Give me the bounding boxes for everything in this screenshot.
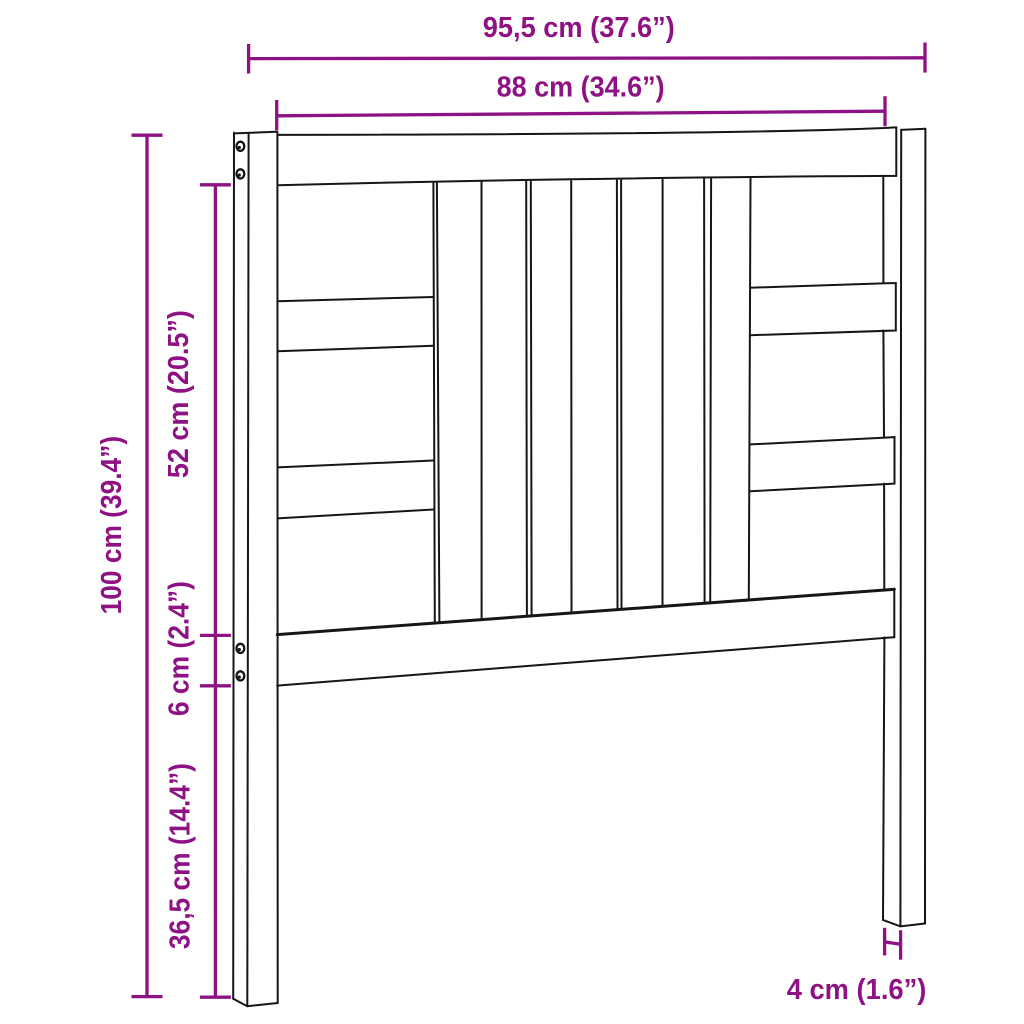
svg-text:36,5 cm (14.4”): 36,5 cm (14.4”) <box>165 763 197 949</box>
svg-text:88 cm (34.6”): 88 cm (34.6”) <box>497 72 665 104</box>
svg-text:95,5 cm (37.6”): 95,5 cm (37.6”) <box>483 12 675 44</box>
svg-text:6 cm (2.4”): 6 cm (2.4”) <box>163 581 195 716</box>
svg-text:52 cm (20.5”): 52 cm (20.5”) <box>163 310 195 478</box>
svg-text:4 cm (1.6”): 4 cm (1.6”) <box>787 974 927 1006</box>
svg-text:100 cm (39.4”): 100 cm (39.4”) <box>96 436 128 615</box>
